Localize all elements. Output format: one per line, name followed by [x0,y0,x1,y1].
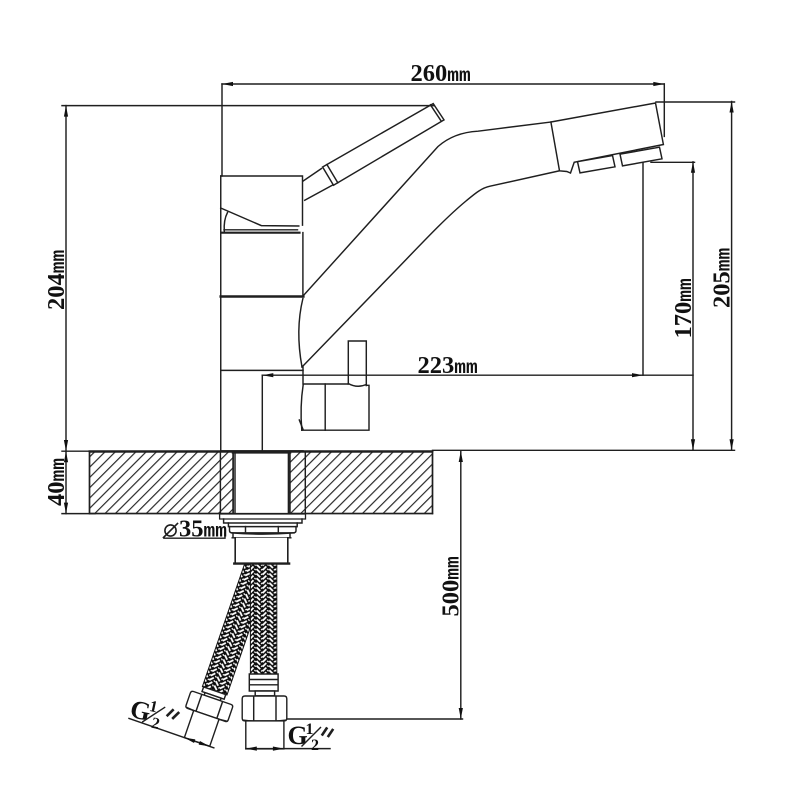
svg-text:260mm: 260mm [411,60,471,87]
svg-text:35mm: 35mm [179,516,227,543]
svg-text:500mm: 500mm [438,556,465,616]
svg-text:40mm: 40mm [43,458,70,506]
svg-text:204mm: 204mm [43,250,70,310]
svg-text:205mm: 205mm [709,248,736,308]
svg-text:223mm: 223mm [418,352,478,379]
svg-text:170mm: 170mm [670,278,697,338]
svg-text:2: 2 [311,737,319,754]
